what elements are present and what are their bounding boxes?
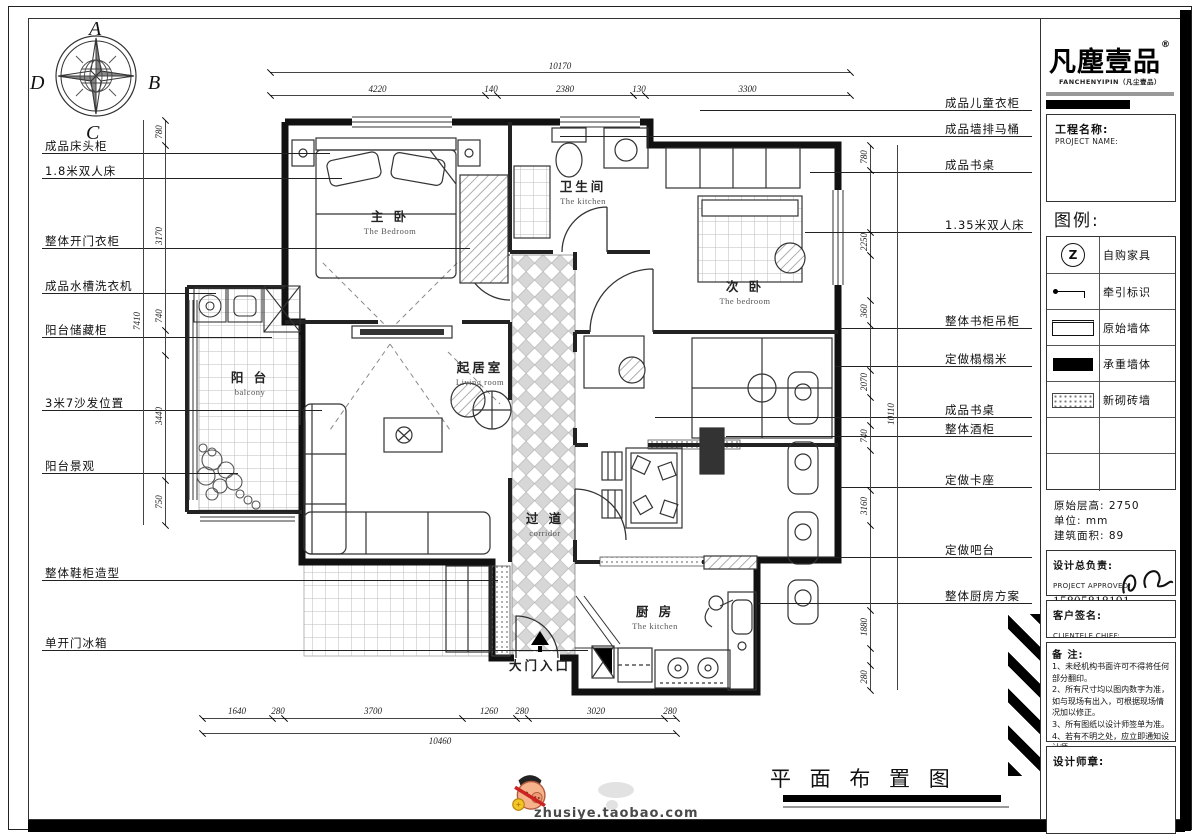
room-label-en: The Bedroom	[320, 226, 460, 236]
ghost-logo-decor	[598, 782, 634, 798]
callout-label: 整体鞋柜造型	[45, 565, 120, 581]
drawing-info: 原始层高: 2750 单位: mm 建筑面积: 89	[1046, 496, 1176, 548]
dimension-value: 780	[154, 102, 164, 162]
title-block: 凡塵壹品® FANCHENYIPIN（凡尘壹品） 工程名称: PROJECT N…	[1040, 18, 1180, 820]
legend-row-empty	[1047, 453, 1175, 491]
room-label-en: corridor	[475, 528, 615, 538]
entrance-arrow-stem	[538, 646, 542, 652]
callout-label: 成品书桌	[945, 402, 995, 418]
callout-label: 成品墙排马桶	[945, 121, 1020, 137]
approver-box: 设计总负责: PROJECT APPROVED: 15805818191	[1046, 550, 1176, 596]
info-area: 建筑面积: 89	[1054, 529, 1168, 544]
sheet-title: 平 面 布 置 图	[770, 763, 956, 793]
room-label: 厨 房The kitchen	[585, 601, 725, 631]
dimension-value: 10170	[530, 61, 590, 71]
dimension-value: 3700	[343, 706, 403, 716]
registered-mark: ®	[1161, 40, 1171, 50]
callout-label: 定做卡座	[945, 472, 995, 488]
room-label: 过 道corridor	[475, 508, 615, 538]
room-label-en: Living room	[410, 377, 550, 387]
stamp-label: 设计师章:	[1053, 756, 1104, 768]
dim-line-bottom-total	[202, 733, 676, 734]
dim-line-top-seg	[270, 95, 850, 96]
room-label-zh: 次 卧	[675, 276, 815, 295]
callout-label: 整体书柜吊柜	[945, 313, 1020, 329]
client-label-en: CLIENTELE CHIEF:	[1053, 632, 1120, 640]
brand-logo: 凡塵壹品®	[1040, 40, 1180, 79]
room-label: 阳 台balcony	[180, 367, 320, 397]
dim-line-left-total	[143, 120, 144, 525]
callout-leader-line	[810, 172, 1032, 173]
callout-label: 成品水槽洗衣机	[45, 278, 133, 294]
callout-label: 阳台景观	[45, 458, 95, 474]
notes-title: 备 注:	[1052, 646, 1170, 661]
room-label-en: balcony	[180, 387, 320, 397]
legend-symbol-z: Z	[1061, 243, 1085, 267]
dimension-value: 740	[154, 286, 164, 346]
legend-table: Z 自购家具 牵引标识 原始墙体 承重墙体 新砌砖墙	[1046, 236, 1176, 490]
dimension-value: 2380	[535, 84, 595, 94]
legend-title: 图例:	[1054, 206, 1100, 231]
note-item: 1、未经机构书面许可不得将任何部分翻印。	[1052, 661, 1170, 684]
dimension-value: 780	[859, 127, 869, 187]
legend-row-self-furniture: Z 自购家具	[1047, 237, 1175, 273]
dimension-value: 4220	[348, 84, 408, 94]
legend-label: 牵引标识	[1103, 284, 1151, 300]
dim-line-right-total	[897, 145, 898, 690]
room-label: 次 卧The bedroom	[675, 276, 815, 306]
room-label-zh: 主 卧	[320, 206, 460, 225]
annotation-layer: 成品床头柜1.8米双人床整体开门衣柜成品水槽洗衣机阳台储藏柜3米7沙发位置阳台景…	[0, 0, 1040, 836]
sheet-title-underline-2	[783, 806, 1009, 808]
callout-label: 阳台储藏柜	[45, 322, 108, 338]
dimension-value: 10460	[410, 736, 470, 746]
dim-line-top-total	[270, 72, 850, 73]
callout-label: 成品书桌	[945, 157, 995, 173]
project-name-label-en: PROJECT NAME:	[1055, 137, 1167, 146]
room-label-zh: 起居室	[410, 357, 550, 376]
new-brick-wall-icon	[1052, 393, 1094, 408]
sheet-title-underline	[783, 795, 1001, 802]
logo-bar-black	[1046, 100, 1130, 109]
dimension-value: 2250	[859, 212, 869, 272]
ghost-logo-decor-2	[606, 800, 618, 810]
dimension-value: 280	[859, 647, 869, 707]
callout-label: 成品床头柜	[45, 138, 108, 154]
note-item: 3、所有图纸以设计师签单为准。	[1052, 719, 1170, 731]
approver-signature	[1114, 563, 1176, 599]
room-label-zh: 阳 台	[180, 367, 320, 386]
dimension-value: 3170	[154, 206, 164, 266]
note-item: 2、所有尺寸均以图内数字为准，如与现场有出入，可根据现场情况加以修正。	[1052, 684, 1170, 719]
dimension-value: 3300	[718, 84, 778, 94]
legend-row-leader-mark: 牵引标识	[1047, 273, 1175, 310]
sheet: A B C D	[0, 0, 1200, 836]
designer-stamp-box: 设计师章:	[1046, 746, 1176, 834]
dimension-value: 3160	[859, 476, 869, 536]
project-name-box: 工程名称: PROJECT NAME:	[1046, 114, 1176, 202]
dimension-value: 280	[492, 706, 552, 716]
logo-bar-thin	[1046, 92, 1174, 96]
legend-label: 原始墙体	[1103, 320, 1151, 336]
info-floor-height: 原始层高: 2750	[1054, 499, 1168, 514]
dimension-value: 7410	[132, 291, 142, 351]
original-wall-icon	[1052, 320, 1094, 336]
room-label-en: The kitchen	[585, 621, 725, 631]
dimension-value: 3440	[154, 386, 164, 446]
info-unit: 单位: mm	[1054, 514, 1168, 529]
room-label-zh: 卫生间	[513, 176, 653, 195]
dimension-value: 2070	[859, 352, 869, 412]
room-label-en: The bedroom	[675, 296, 815, 306]
callout-leader-line	[42, 650, 588, 651]
leader-mark-icon	[1054, 286, 1092, 298]
notes-box: 备 注: 1、未经机构书面许可不得将任何部分翻印。 2、所有尺寸均以图内数字为准…	[1046, 642, 1176, 742]
legend-row-bearing-wall: 承重墙体	[1047, 345, 1175, 382]
callout-label: 单开门冰箱	[45, 635, 108, 651]
client-signature-box: 客户签名: CLIENTELE CHIEF:	[1046, 600, 1176, 638]
bearing-wall-icon	[1053, 358, 1093, 371]
legend-row-empty	[1047, 417, 1175, 454]
approver-label: 设计总负责:	[1053, 561, 1113, 572]
project-name-label: 工程名称:	[1055, 121, 1167, 137]
callout-label: 整体开门衣柜	[45, 233, 120, 249]
callout-label: 3米7沙发位置	[45, 395, 124, 411]
callout-label: 定做榻榻米	[945, 351, 1008, 367]
entrance-arrow-icon	[531, 631, 549, 645]
legend-row-new-brick-wall: 新砌砖墙	[1047, 381, 1175, 418]
room-label: 卫生间The kitchen	[513, 176, 653, 206]
callout-label: 1.35米双人床	[945, 217, 1025, 233]
callout-label: 1.8米双人床	[45, 163, 116, 179]
legend-label: 新砌砖墙	[1103, 392, 1151, 408]
dimension-value: 360	[859, 281, 869, 341]
callout-label: 成品儿童衣柜	[945, 95, 1020, 111]
room-label: 主 卧The Bedroom	[320, 206, 460, 236]
dim-line-left-seg	[165, 120, 166, 525]
dim-line-right-seg	[870, 145, 871, 690]
legend-label: 自购家具	[1103, 247, 1151, 263]
dimension-value: 130	[609, 84, 669, 94]
room-label-zh: 厨 房	[585, 601, 725, 620]
room-label: 起居室Living room	[410, 357, 550, 387]
dimension-value: 10110	[886, 384, 896, 444]
callout-label: 整体厨房方案	[945, 588, 1020, 604]
right-black-bar	[1180, 10, 1191, 831]
dimension-value: 280	[248, 706, 308, 716]
dimension-value: 3020	[566, 706, 626, 716]
brand-logo-subtext: FANCHENYIPIN（凡尘壹品）	[1040, 76, 1180, 86]
dimension-value: 280	[640, 706, 700, 716]
callout-label: 定做吧台	[945, 542, 995, 558]
dimension-value: 740	[859, 406, 869, 466]
room-label: 大门入口	[470, 655, 610, 674]
room-label-zh: 过 道	[475, 508, 615, 527]
client-label: 客户签名:	[1053, 611, 1102, 622]
room-label-zh: 大门入口	[470, 655, 610, 674]
legend-label: 承重墙体	[1103, 356, 1151, 372]
dimension-value: 140	[461, 84, 521, 94]
room-label-en: The kitchen	[513, 196, 653, 206]
callout-label: 整体酒柜	[945, 421, 995, 437]
legend-row-original-wall: 原始墙体	[1047, 309, 1175, 346]
